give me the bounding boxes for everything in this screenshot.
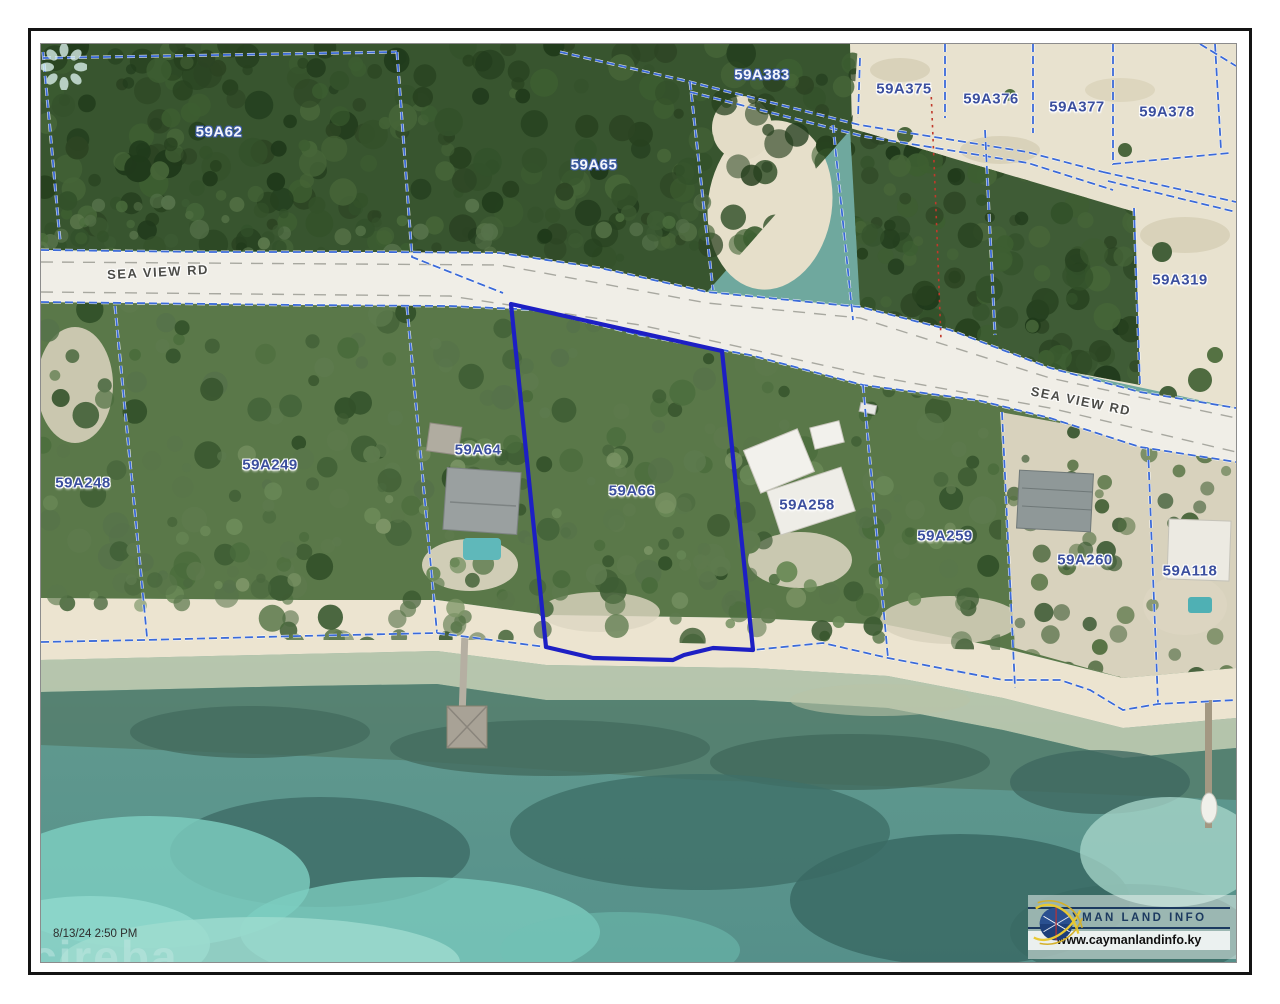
cayman-land-info-logo[interactable]: CAYMAN LAND INFO www.caymanlandinfo.ky	[1028, 895, 1236, 959]
parcel-label-59A65: 59A65	[571, 157, 618, 174]
parcel-label-59A62: 59A62	[196, 124, 243, 141]
parcel-label-59A249: 59A249	[242, 457, 298, 474]
cireba-flower-icon	[41, 44, 87, 90]
parcel-label-59A378: 59A378	[1139, 104, 1195, 121]
aerial-map-viewport[interactable]: 59A62 59A65 59A383 59A375 59A376 59A377 …	[40, 43, 1237, 963]
parcel-label-59A377: 59A377	[1049, 99, 1105, 116]
parcel-label-59A258: 59A258	[779, 497, 835, 514]
parcel-label-59A248: 59A248	[55, 475, 111, 492]
parcel-label-59A375: 59A375	[876, 81, 932, 98]
parcel-label-59A319: 59A319	[1152, 272, 1208, 289]
parcel-lines	[41, 44, 1236, 710]
parcel-boundary-layer	[41, 44, 1236, 962]
parcel-label-59A118: 59A118	[1163, 563, 1218, 580]
parcel-label-59A64: 59A64	[455, 442, 502, 459]
map-frame: 59A62 59A65 59A383 59A375 59A376 59A377 …	[28, 28, 1252, 975]
parcel-label-59A66: 59A66	[609, 483, 656, 500]
parcel-label-59A260: 59A260	[1057, 552, 1113, 569]
parcel-label-59A383: 59A383	[734, 67, 790, 84]
timestamp-watermark: 8/13/24 2:50 PM	[53, 928, 137, 940]
survey-dotted-line	[931, 90, 941, 340]
parcel-label-59A259: 59A259	[917, 528, 973, 545]
parcel-label-59A376: 59A376	[963, 91, 1019, 108]
globe-icon	[1030, 895, 1088, 953]
